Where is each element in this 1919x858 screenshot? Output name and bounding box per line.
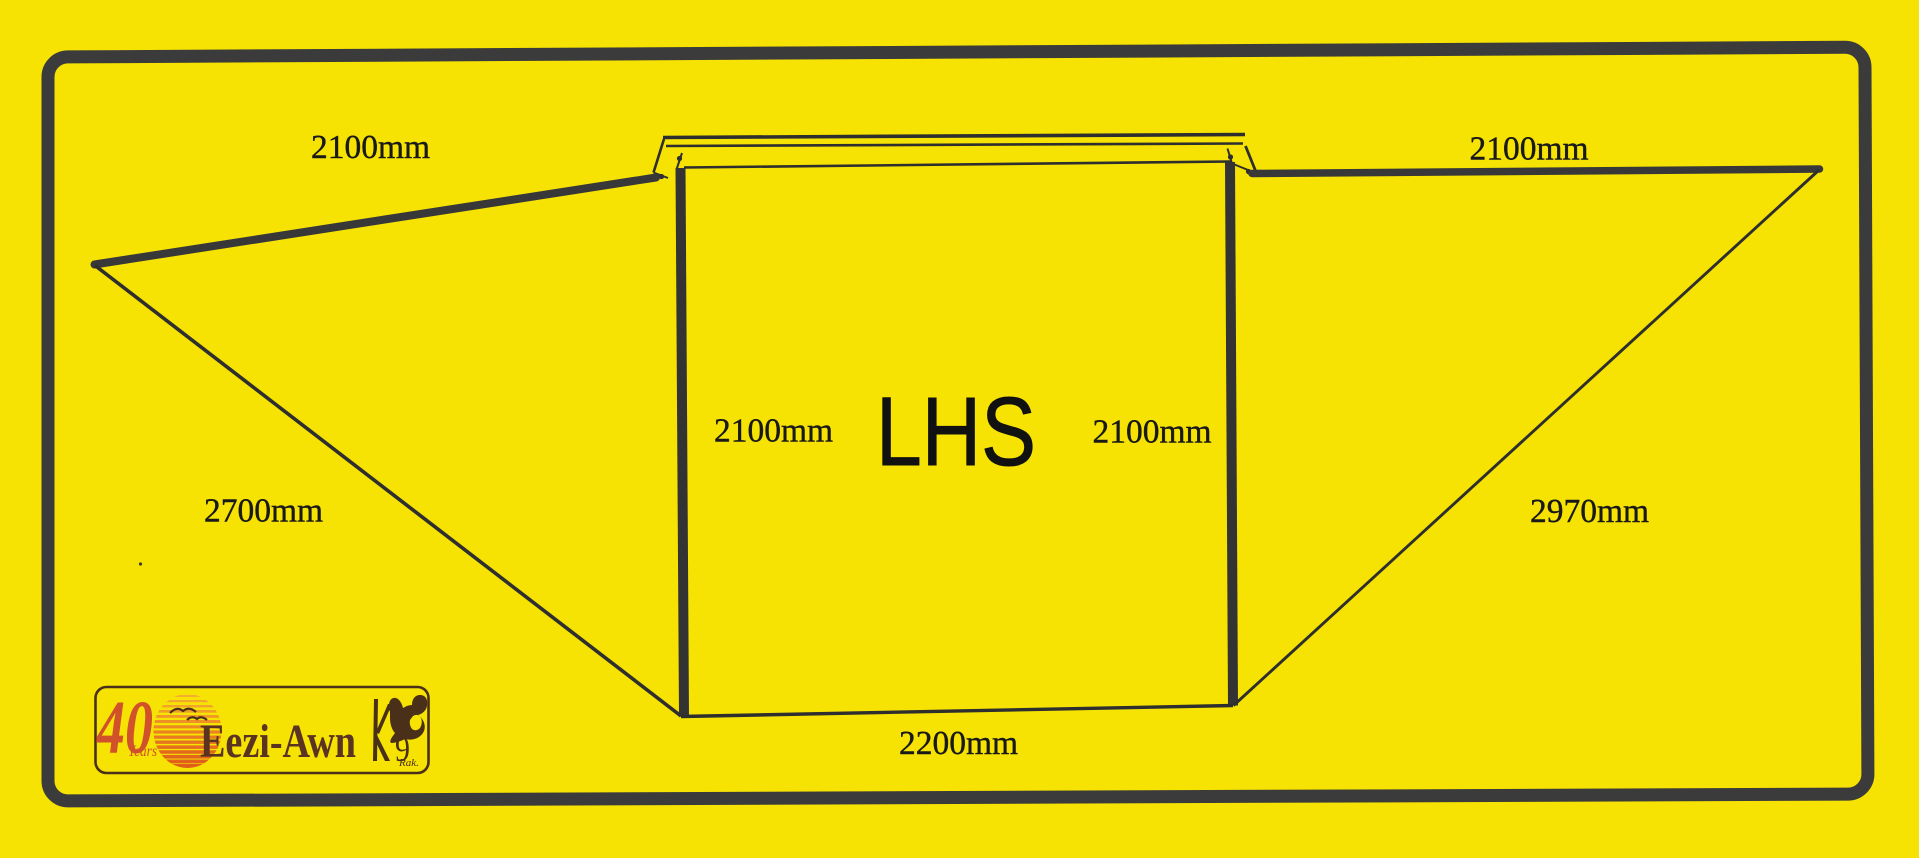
svg-text:LHS: LHS — [876, 377, 1036, 486]
svg-text:Years: Years — [128, 743, 157, 760]
svg-text:2100mm: 2100mm — [714, 413, 833, 450]
svg-text:2100mm: 2100mm — [311, 129, 430, 166]
svg-text:2200mm: 2200mm — [899, 725, 1018, 762]
svg-text:2100mm: 2100mm — [1092, 414, 1211, 451]
svg-text:Eezi-Awn: Eezi-Awn — [200, 715, 356, 768]
svg-text:2700mm: 2700mm — [204, 493, 323, 530]
svg-text:2100mm: 2100mm — [1469, 131, 1588, 168]
svg-text:2970mm: 2970mm — [1530, 493, 1649, 530]
svg-text:Rak.: Rak. — [398, 757, 419, 769]
